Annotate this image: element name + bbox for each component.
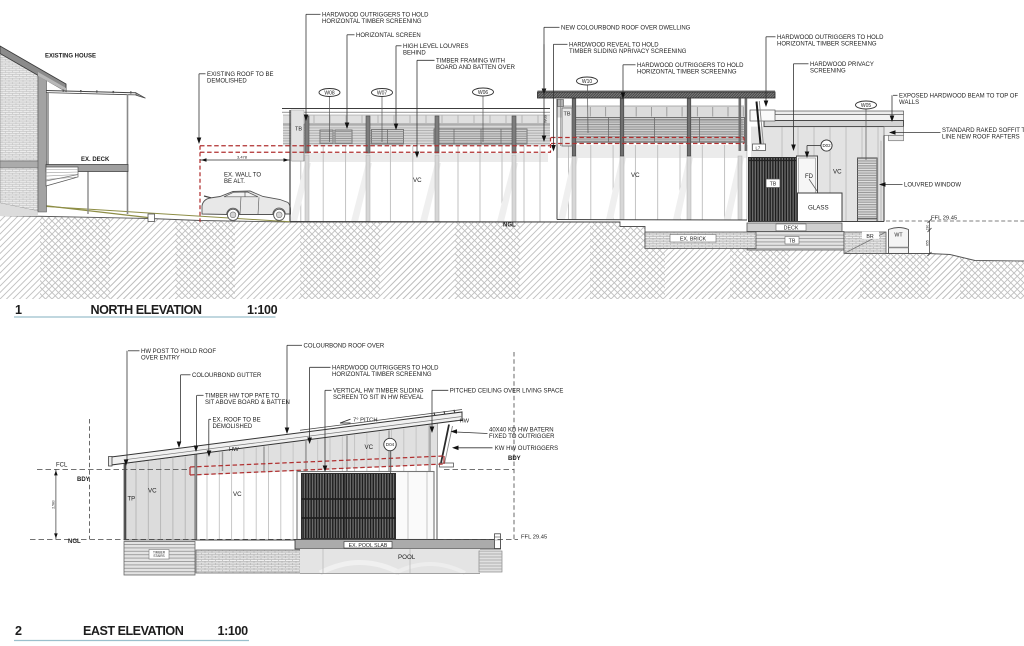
svg-text:HORIZONTAL TIMBER SCREENING: HORIZONTAL TIMBER SCREENING	[332, 372, 432, 378]
svg-text:NEW COLOURBOND ROOF OVER DWELL: NEW COLOURBOND ROOF OVER DWELLING	[561, 26, 691, 32]
svg-text:EAST ELEVATION: EAST ELEVATION	[83, 624, 184, 638]
svg-text:W07: W07	[377, 90, 388, 96]
svg-text:EXPOSED HARDWOOD BEAM TO TOP O: EXPOSED HARDWOOD BEAM TO TOP OF	[899, 94, 1018, 100]
svg-text:EX. WALL TO: EX. WALL TO	[224, 173, 261, 179]
svg-text:FCL: FCL	[56, 462, 68, 468]
svg-text:KW HW OUTRIGGERS: KW HW OUTRIGGERS	[495, 446, 558, 452]
svg-text:HW: HW	[229, 447, 239, 453]
svg-text:SCREEN TO SIT IN HW REVEAL: SCREEN TO SIT IN HW REVEAL	[333, 395, 424, 401]
svg-text:BDY: BDY	[508, 456, 521, 462]
svg-text:1:100: 1:100	[247, 303, 278, 317]
svg-text:EX. DECK: EX. DECK	[81, 157, 110, 163]
svg-text:VC: VC	[365, 444, 374, 451]
svg-text:HARDWOOD REVEAL TO HOLD: HARDWOOD REVEAL TO HOLD	[569, 43, 659, 49]
svg-text:W10: W10	[582, 79, 593, 85]
svg-text:2: 2	[15, 624, 22, 638]
svg-text:COLOURBOND GUTTER: COLOURBOND GUTTER	[192, 373, 262, 379]
svg-text:TB: TB	[770, 182, 777, 188]
svg-text:TIMBER HW TOP PATE TO: TIMBER HW TOP PATE TO	[205, 394, 280, 400]
svg-text:BEHIND: BEHIND	[403, 50, 426, 56]
svg-text:GLASS: GLASS	[808, 205, 829, 212]
svg-text:VC: VC	[833, 169, 842, 176]
svg-text:DEMOLISHED: DEMOLISHED	[207, 78, 247, 84]
svg-text:W09: W09	[543, 114, 548, 123]
svg-text:TB: TB	[564, 111, 571, 117]
svg-text:HW: HW	[460, 419, 470, 425]
svg-text:2,580: 2,580	[51, 500, 55, 509]
svg-text:BR: BR	[866, 234, 874, 240]
svg-text:STANDARD RAKED SOFFIT TO: STANDARD RAKED SOFFIT TO	[942, 128, 1024, 134]
svg-text:7° PITCH: 7° PITCH	[353, 418, 378, 424]
svg-text:NGL: NGL	[503, 222, 516, 228]
svg-text:STAIRS: STAIRS	[153, 554, 164, 558]
svg-text:D04: D04	[386, 442, 395, 447]
svg-text:EXISTING HOUSE: EXISTING HOUSE	[45, 54, 96, 60]
svg-text:TIMBER FRAMING WITH: TIMBER FRAMING WITH	[436, 59, 505, 65]
svg-text:VC: VC	[233, 491, 242, 498]
svg-text:NGL: NGL	[68, 539, 81, 545]
svg-text:FIXED TO OUTRIGGER: FIXED TO OUTRIGGER	[489, 434, 555, 440]
svg-text:HORIZONTAL TIMBER SCREENING: HORIZONTAL TIMBER SCREENING	[322, 19, 422, 25]
svg-text:DEMOLISHED: DEMOLISHED	[213, 424, 253, 430]
svg-text:HARDWOOD PRIVACY: HARDWOOD PRIVACY	[810, 62, 874, 68]
svg-text:190: 190	[925, 225, 929, 231]
svg-text:BOARD AND BATTEN OVER: BOARD AND BATTEN OVER	[436, 65, 516, 71]
svg-text:W08: W08	[324, 90, 335, 96]
svg-text:1:100: 1:100	[218, 624, 249, 638]
svg-text:TB: TB	[295, 127, 302, 133]
svg-text:VC: VC	[413, 177, 422, 184]
svg-text:SCREENING: SCREENING	[810, 68, 846, 74]
svg-text:EX. ROOF TO BE: EX. ROOF TO BE	[213, 418, 261, 424]
svg-text:BDY: BDY	[77, 477, 90, 483]
svg-text:FD: FD	[805, 174, 814, 180]
svg-text:HIGH LEVEL LOUVRES: HIGH LEVEL LOUVRES	[403, 44, 468, 50]
svg-text:HARDWOOD OUTRIGGERS TO HOLD: HARDWOOD OUTRIGGERS TO HOLD	[332, 366, 439, 372]
svg-text:EX. BRICK: EX. BRICK	[680, 236, 707, 242]
svg-text:L7: L7	[756, 146, 761, 151]
svg-text:COLOURBOND ROOF OVER: COLOURBOND ROOF OVER	[304, 344, 385, 350]
svg-text:PITCHED CEILING OVER LIVING SP: PITCHED CEILING OVER LIVING SPACE	[450, 389, 564, 395]
svg-text:D02: D02	[822, 143, 831, 148]
svg-text:NORTH ELEVATION: NORTH ELEVATION	[91, 303, 202, 317]
svg-text:40X40 KD HW BATERN: 40X40 KD HW BATERN	[489, 428, 554, 434]
svg-text:TIMBER SLIDING NPRIVACY SCREEN: TIMBER SLIDING NPRIVACY SCREENING	[569, 49, 687, 55]
svg-text:FFL 29.45: FFL 29.45	[521, 535, 547, 541]
svg-text:FFL 29.45: FFL 29.45	[931, 216, 957, 222]
svg-text:WALLS: WALLS	[899, 100, 919, 106]
svg-text:SIT ABOVE BOARD & BATTEN: SIT ABOVE BOARD & BATTEN	[205, 400, 290, 406]
svg-text:1: 1	[15, 303, 22, 317]
svg-text:BE ALT.: BE ALT.	[224, 179, 245, 185]
svg-text:HORIZONTAL TIMBER SCREENING: HORIZONTAL TIMBER SCREENING	[637, 69, 737, 75]
svg-text:W06: W06	[478, 90, 489, 96]
svg-text:WT: WT	[894, 233, 903, 239]
svg-text:LOUVRED WINDOW: LOUVRED WINDOW	[904, 183, 961, 189]
svg-text:EXISTING ROOF TO BE: EXISTING ROOF TO BE	[207, 72, 273, 78]
svg-text:HORIZONTAL TIMBER SCREENING: HORIZONTAL TIMBER SCREENING	[777, 41, 877, 47]
svg-text:LINE NEW ROOF RAFTERS: LINE NEW ROOF RAFTERS	[942, 135, 1020, 141]
svg-text:W05: W05	[861, 103, 872, 109]
svg-text:HARDWOOD OUTRIGGERS TO HOLD: HARDWOOD OUTRIGGERS TO HOLD	[637, 63, 744, 69]
svg-text:HARDWOOD OUTRIGGERS TO HOLD: HARDWOOD OUTRIGGERS TO HOLD	[322, 13, 429, 19]
svg-text:OVER ENTRY: OVER ENTRY	[141, 355, 180, 361]
svg-text:EX. POOL SLAB: EX. POOL SLAB	[349, 543, 388, 549]
svg-text:TB: TB	[789, 238, 796, 244]
svg-text:HORIZONTAL SCREEN: HORIZONTAL SCREEN	[356, 33, 421, 39]
svg-text:POOL: POOL	[398, 554, 416, 561]
svg-text:VC: VC	[148, 488, 157, 495]
svg-text:655: 655	[925, 240, 929, 246]
svg-text:HARDWOOD OUTRIGGERS TO HOLD: HARDWOOD OUTRIGGERS TO HOLD	[777, 35, 884, 41]
svg-text:VERTICAL HW TIMBER SLIDING: VERTICAL HW TIMBER SLIDING	[333, 389, 424, 395]
svg-text:VC: VC	[631, 172, 640, 179]
svg-text:DECK: DECK	[784, 226, 799, 232]
svg-text:HW POST TO HOLD ROOF: HW POST TO HOLD ROOF	[141, 349, 216, 355]
svg-text:3,478: 3,478	[237, 154, 248, 159]
svg-text:TP: TP	[128, 497, 136, 503]
